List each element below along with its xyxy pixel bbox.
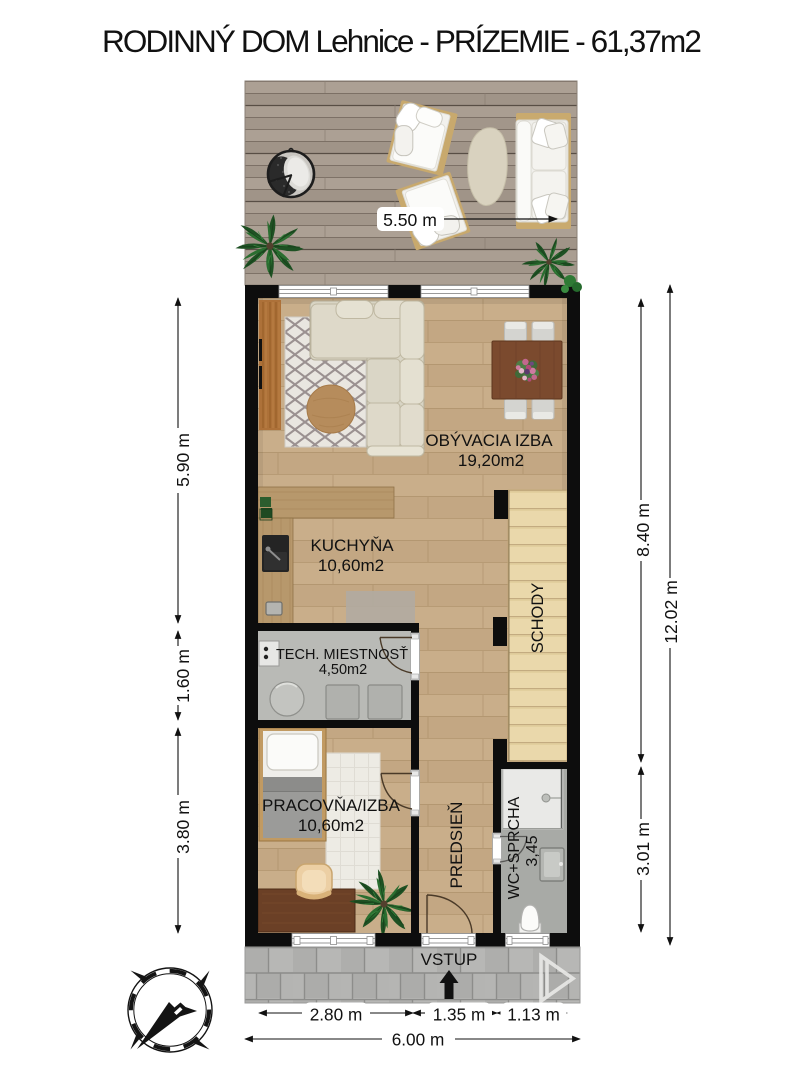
svg-text:3,45: 3,45 <box>524 835 541 866</box>
svg-text:PREDSIEŇ: PREDSIEŇ <box>447 802 466 889</box>
svg-text:12.02 m: 12.02 m <box>661 580 681 644</box>
svg-text:RODINNÝ DOM Lehnice - PRÍZEMIE: RODINNÝ DOM Lehnice - PRÍZEMIE - 61,37m2 <box>102 23 700 59</box>
svg-text:1.13 m: 1.13 m <box>507 1005 560 1025</box>
svg-text:2.80 m: 2.80 m <box>310 1005 363 1025</box>
svg-text:TECH. MIESTNOSŤ: TECH. MIESTNOSŤ <box>276 646 408 663</box>
svg-text:KUCHYŇA: KUCHYŇA <box>310 536 394 555</box>
svg-text:VSTUP: VSTUP <box>421 950 478 969</box>
svg-text:1.60 m: 1.60 m <box>173 649 193 703</box>
svg-text:3.80 m: 3.80 m <box>173 800 193 854</box>
svg-text:5.90 m: 5.90 m <box>173 433 193 487</box>
svg-text:1.35 m: 1.35 m <box>433 1005 486 1025</box>
svg-text:PRACOVŇA/IZBA: PRACOVŇA/IZBA <box>262 796 401 815</box>
svg-text:6.00 m: 6.00 m <box>392 1030 445 1050</box>
svg-text:WC+SPRCHA: WC+SPRCHA <box>506 796 523 899</box>
svg-text:10,60m2: 10,60m2 <box>318 556 384 575</box>
svg-text:SCHODY: SCHODY <box>529 583 547 654</box>
svg-text:8.40 m: 8.40 m <box>633 503 653 557</box>
svg-text:5.50 m: 5.50 m <box>383 210 437 230</box>
svg-text:3.01 m: 3.01 m <box>633 822 653 876</box>
svg-text:19,20m2: 19,20m2 <box>458 451 524 470</box>
svg-text:4,50m2: 4,50m2 <box>319 662 367 678</box>
svg-text:10,60m2: 10,60m2 <box>298 816 364 835</box>
svg-text:OBÝVACIA IZBA: OBÝVACIA IZBA <box>425 431 553 450</box>
